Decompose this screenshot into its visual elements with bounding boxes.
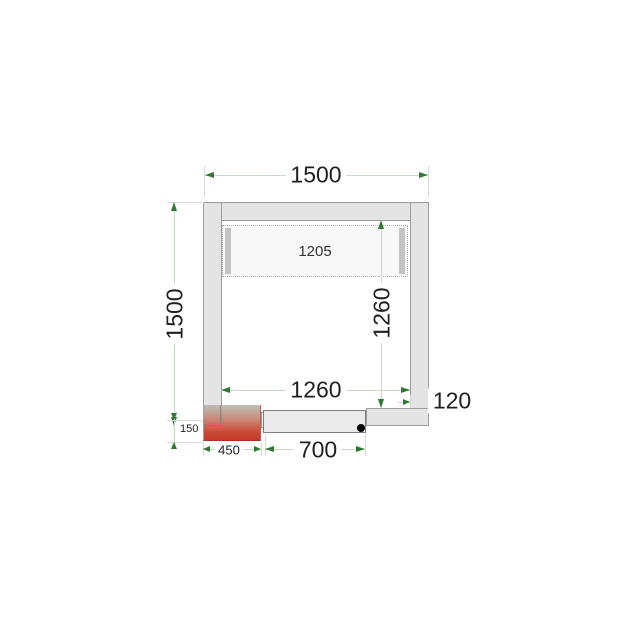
dim-arrow-right [419,172,428,178]
door-hinge-dot [357,424,365,432]
ext-line [365,435,366,456]
inner-width-label: 1260 [285,378,346,403]
dim-arrow-down [378,399,384,408]
wall-corner-line-horizontal [203,425,221,426]
panel-end-bar-left [225,228,231,274]
wall-left [203,202,222,426]
unit-overhang-label: 150 [178,424,200,435]
unit-width-label: 450 [215,443,243,458]
door-panel [263,410,366,433]
refrigeration-unit [203,405,261,441]
inner-depth-label: 1260 [370,282,395,343]
floor-plan-canvas: 1205 1500 1500 1260 1260 120 150 [0,0,630,630]
dim-arrow-right [254,446,261,452]
dim-arrow-up [378,220,384,229]
dim-arrow-left [265,446,274,452]
wall-bottom-right [366,408,429,426]
dim-arrow-right [403,399,410,405]
wall-corner-line-vertical [220,405,221,426]
dim-arrow-left [203,446,210,452]
dim-arrow-right [401,387,410,393]
ext-line [410,395,411,408]
outer-width-label: 1500 [285,163,346,188]
dim-arrow-up [171,202,177,211]
ext-line [167,420,203,421]
wall-thickness-label: 120 [428,389,476,414]
dim-arrow-left [221,387,230,393]
dim-arrow-up [171,442,177,449]
dim-arrow-down [171,413,177,420]
door-width-label: 700 [294,438,342,463]
dim-arrow-right [356,446,365,452]
ext-line [428,166,429,197]
wall-top [203,202,429,221]
ext-line [261,443,262,456]
panel-end-bar-right [399,228,405,274]
panel-width-label: 1205 [298,243,331,260]
dim-arrow-left [205,172,214,178]
wall-right [410,202,429,426]
outer-depth-label: 1500 [163,283,188,344]
ext-line [204,166,205,197]
